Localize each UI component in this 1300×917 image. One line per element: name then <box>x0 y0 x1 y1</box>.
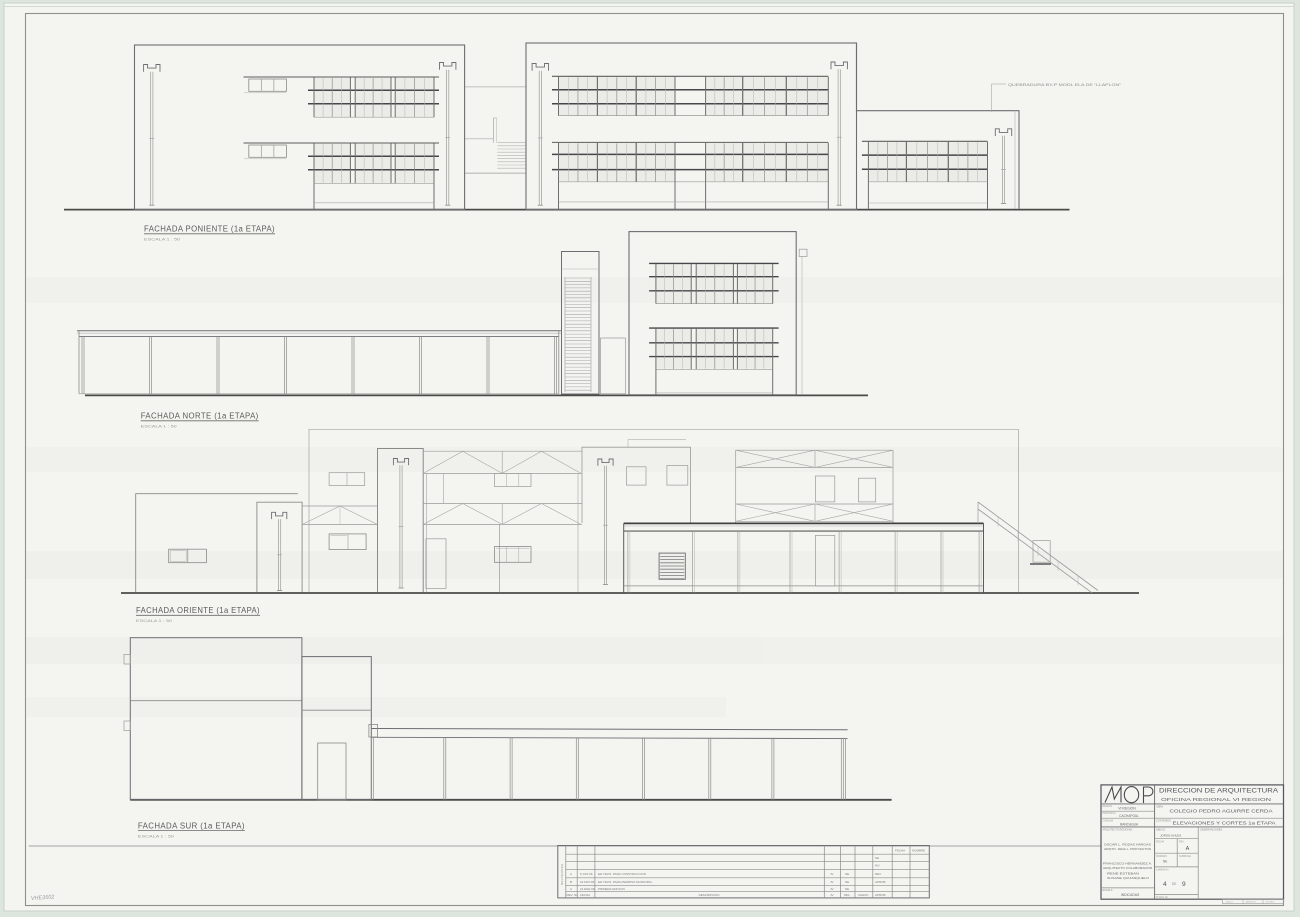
svg-text:NE: NE <box>1163 860 1167 864</box>
svg-text:JORGE AVILES: JORGE AVILES <box>1160 833 1181 837</box>
svg-text:DIBUJO: DIBUJO <box>1156 829 1165 832</box>
svg-text:FECHA: FECHA <box>1156 840 1165 843</box>
svg-text:JV: JV <box>830 880 834 884</box>
svg-text:ESCALA 1 : 50: ESCALA 1 : 50 <box>136 618 173 623</box>
svg-text:INDICADAS: INDICADAS <box>1121 893 1140 897</box>
svg-text:NE: NE <box>845 872 849 876</box>
svg-text:ESCALA 1 : 50: ESCALA 1 : 50 <box>141 423 178 428</box>
svg-text:FACHADA SUR (1a ETAPA): FACHADA SUR (1a ETAPA) <box>138 821 245 830</box>
svg-text:REGION: REGION <box>1103 805 1113 808</box>
svg-text:LAMINA No: LAMINA No <box>1156 869 1169 872</box>
svg-text:NO: NO <box>875 864 880 868</box>
svg-text:ARCHIVO: ARCHIVO <box>1246 901 1256 904</box>
svg-text:ARQUITECTO REGIONAL: ARQUITECTO REGIONAL <box>1103 829 1134 832</box>
svg-text:NE: NE <box>875 856 879 860</box>
svg-text:FACHADA PONIENTE (1a ETAPA): FACHADA PONIENTE (1a ETAPA) <box>144 225 275 234</box>
svg-text:FECHA: FECHA <box>580 893 590 897</box>
svg-text:MFL: MFL <box>844 893 850 897</box>
svg-text:21.ENE.96: 21.ENE.96 <box>580 887 595 891</box>
svg-text:CONTENIDO: CONTENIDO <box>1156 820 1171 823</box>
svg-text:NE: NE <box>845 880 849 884</box>
svg-text:PLANO No: PLANO No <box>1156 896 1168 899</box>
svg-text:FIRMADO: FIRMADO <box>1156 855 1167 858</box>
svg-text:COMUNA: COMUNA <box>1103 820 1114 823</box>
svg-text:SUSANE QUIJANQUELO: SUSANE QUIJANQUELO <box>1107 876 1150 880</box>
svg-text:JV: JV <box>830 887 834 891</box>
svg-text:ARQUITECTO COLABORADOR: ARQUITECTO COLABORADOR <box>1103 866 1153 870</box>
svg-text:NOMBRE: NOMBRE <box>912 849 925 853</box>
svg-text:REV. No: REV. No <box>567 893 579 897</box>
svg-text:REV.: REV. <box>1179 840 1185 843</box>
svg-text:A: A <box>570 872 572 876</box>
svg-text:APROB: APROB <box>875 893 886 897</box>
svg-text:JV: JV <box>830 872 834 876</box>
svg-text:RENE ESTEBAN: RENE ESTEBAN <box>1107 872 1139 876</box>
svg-text:22.MAY.96: 22.MAY.96 <box>580 880 595 884</box>
svg-text:ESCALA 1 : 50: ESCALA 1 : 50 <box>138 833 175 838</box>
svg-text:VI REGION: VI REGION <box>1118 807 1136 811</box>
svg-text:ED.TECN. PARA CONSTRUCCION: ED.TECN. PARA CONSTRUCCION <box>598 872 646 876</box>
svg-text:FECHA: FECHA <box>895 849 905 853</box>
svg-text:ARQTO. JEFE L. PROYECTOS: ARQTO. JEFE L. PROYECTOS <box>1104 847 1151 851</box>
svg-text:ESCALA: ESCALA <box>1103 889 1113 892</box>
svg-text:QUEBRADURA BY-P MODL ELA DE “L: QUEBRADURA BY-P MODL ELA DE “LLAPLON” <box>1008 83 1121 87</box>
svg-text:B: B <box>570 880 572 884</box>
svg-text:9: 9 <box>1182 881 1186 888</box>
svg-text:SUBROGE: SUBROGE <box>1179 855 1191 858</box>
svg-text:JV: JV <box>830 893 834 897</box>
svg-text:COLEGIO PEDRO AGUIRRE CERDA: COLEGIO PEDRO AGUIRRE CERDA <box>1170 809 1273 814</box>
svg-text:ED.TECN. PARA PERMISO MUNICIPA: ED.TECN. PARA PERMISO MUNICIPAL <box>598 880 653 884</box>
svg-text:APROB: APROB <box>875 880 886 884</box>
svg-text:DE: DE <box>1172 882 1176 886</box>
svg-text:No REG: No REG <box>1266 902 1274 904</box>
svg-text:4: 4 <box>1163 881 1167 888</box>
svg-text:NE: NE <box>845 887 849 891</box>
svg-text:OBSERVACIONES: OBSERVACIONES <box>1200 828 1223 832</box>
svg-text:DISCO: DISCO <box>1226 902 1233 904</box>
svg-text:OBRA: OBRA <box>1156 806 1163 809</box>
svg-text:PRIMERA EDICION: PRIMERA EDICION <box>598 887 625 891</box>
svg-text:5.JUN.96: 5.JUN.96 <box>580 872 593 876</box>
svg-text:DIRECCION DE ARQUITECTURA: DIRECCION DE ARQUITECTURA <box>1159 787 1279 794</box>
svg-text:REVISIONES: REVISIONES <box>560 864 564 885</box>
svg-text:DESCRIPCION: DESCRIPCION <box>699 893 720 897</box>
svg-text:FACHADA ORIENTE (1a ETAPA): FACHADA ORIENTE (1a ETAPA) <box>136 606 260 615</box>
svg-text:ESCALA 1 : 50: ESCALA 1 : 50 <box>144 237 181 242</box>
svg-text:A: A <box>1186 846 1190 852</box>
svg-text:OSCAR L. ROZAS VARGAS: OSCAR L. ROZAS VARGAS <box>1104 843 1151 847</box>
svg-text:FACHADA NORTE (1a ETAPA): FACHADA NORTE (1a ETAPA) <box>141 412 259 421</box>
svg-text:RANCAGUA: RANCAGUA <box>1120 822 1139 826</box>
svg-text:CACHAPOAL: CACHAPOAL <box>1119 814 1139 818</box>
svg-text:ELEVACIONES Y CORTES 1a ET: ELEVACIONES Y CORTES 1a ETAPA <box>1173 821 1276 826</box>
svg-text:OFICINA REGIONAL VI REG: OFICINA REGIONAL VI REGION <box>1161 797 1272 803</box>
svg-text:PROVINCIA: PROVINCIA <box>1103 812 1117 815</box>
svg-text:REV: REV <box>875 872 881 876</box>
svg-text:CHECK: CHECK <box>858 893 869 897</box>
